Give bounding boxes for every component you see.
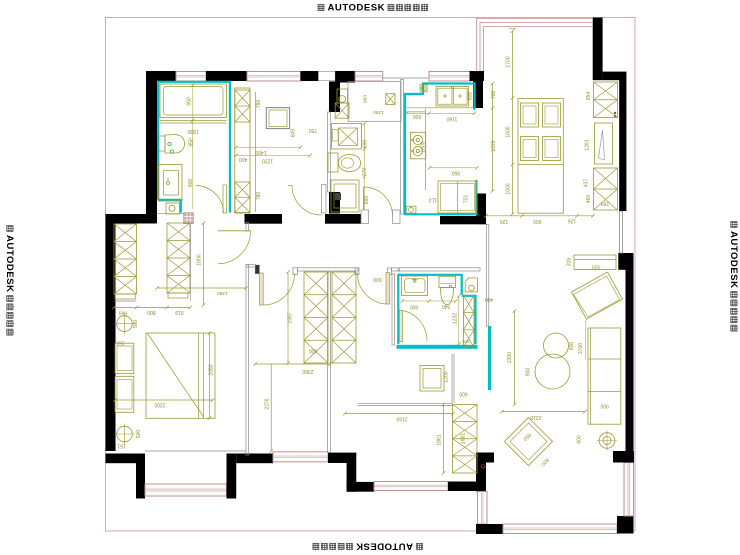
svg-text:600: 600 [363, 140, 369, 149]
svg-text:1390: 1390 [217, 290, 228, 296]
svg-text:750: 750 [309, 127, 318, 133]
svg-text:151: 151 [117, 443, 126, 449]
svg-text:1861: 1861 [437, 434, 443, 445]
svg-text:1232: 1232 [453, 313, 459, 324]
svg-text:780: 780 [256, 100, 262, 109]
svg-text:319: 319 [567, 258, 573, 267]
svg-text:800: 800 [147, 309, 156, 315]
svg-text:2050: 2050 [209, 364, 215, 375]
svg-text:751: 751 [464, 195, 470, 204]
svg-text:1830: 1830 [187, 128, 198, 134]
svg-text:AUTODESK: AUTODESK [728, 231, 739, 288]
svg-text:150: 150 [116, 340, 125, 346]
svg-text:2360: 2360 [302, 368, 313, 374]
svg-text:900: 900 [600, 403, 609, 409]
svg-text:126: 126 [500, 218, 509, 224]
svg-text:1400: 1400 [255, 149, 266, 155]
svg-text:600: 600 [459, 391, 468, 397]
svg-text:1700: 1700 [506, 56, 512, 67]
svg-text:950: 950 [189, 138, 195, 147]
svg-text:1676: 1676 [491, 140, 497, 151]
svg-text:770: 770 [362, 168, 368, 177]
svg-text:600: 600 [309, 348, 318, 354]
svg-text:AUTODESK: AUTODESK [4, 235, 15, 292]
svg-text:113: 113 [429, 197, 437, 203]
svg-text:500: 500 [133, 320, 139, 329]
svg-text:1160: 1160 [446, 116, 457, 122]
svg-text:950: 950 [452, 170, 461, 176]
svg-text:600: 600 [291, 129, 297, 138]
svg-text:900: 900 [526, 368, 532, 377]
svg-text:1997: 1997 [288, 312, 294, 323]
svg-text:1800: 1800 [197, 254, 203, 265]
svg-text:920: 920 [592, 264, 601, 270]
svg-text:2276: 2276 [264, 398, 270, 409]
svg-text:370: 370 [462, 339, 470, 344]
svg-text:540: 540 [442, 303, 451, 309]
svg-text:1200: 1200 [444, 371, 450, 382]
svg-text:900: 900 [188, 179, 194, 188]
svg-text:600: 600 [413, 113, 422, 119]
svg-text:1600: 1600 [506, 126, 512, 137]
svg-text:919: 919 [175, 309, 184, 315]
svg-text:600: 600 [410, 304, 419, 310]
svg-text:2200: 2200 [154, 402, 165, 408]
svg-text:1661: 1661 [461, 433, 467, 444]
svg-text:400: 400 [485, 296, 494, 302]
svg-text:3700: 3700 [578, 343, 584, 354]
svg-text:1281: 1281 [585, 139, 591, 150]
svg-text:1220: 1220 [262, 158, 273, 164]
svg-text:600: 600 [533, 218, 542, 224]
svg-text:2160: 2160 [396, 416, 407, 422]
svg-text:AUTODESK: AUTODESK [356, 540, 413, 551]
svg-text:259: 259 [601, 200, 610, 206]
svg-text:600: 600 [577, 435, 583, 444]
svg-text:400: 400 [239, 156, 248, 162]
svg-text:950: 950 [187, 97, 193, 106]
svg-text:800: 800 [364, 196, 370, 205]
svg-text:437: 437 [584, 179, 590, 188]
svg-text:600: 600 [373, 276, 382, 282]
svg-text:126: 126 [568, 218, 577, 224]
svg-text:500: 500 [136, 430, 142, 439]
svg-text:600: 600 [468, 92, 474, 101]
svg-text:780: 780 [256, 192, 262, 201]
svg-text:1600: 1600 [421, 141, 427, 152]
svg-text:565: 565 [119, 310, 128, 316]
svg-text:1000: 1000 [506, 183, 512, 194]
svg-text:854: 854 [586, 92, 592, 101]
svg-text:460: 460 [586, 195, 592, 204]
svg-text:2300: 2300 [507, 352, 513, 363]
svg-text:AUTODESK: AUTODESK [328, 3, 385, 14]
svg-text:2210: 2210 [530, 414, 541, 420]
svg-text:600: 600 [569, 342, 575, 351]
svg-text:1290: 1290 [373, 109, 384, 115]
svg-text:960: 960 [363, 95, 369, 103]
svg-text:700: 700 [491, 91, 497, 100]
